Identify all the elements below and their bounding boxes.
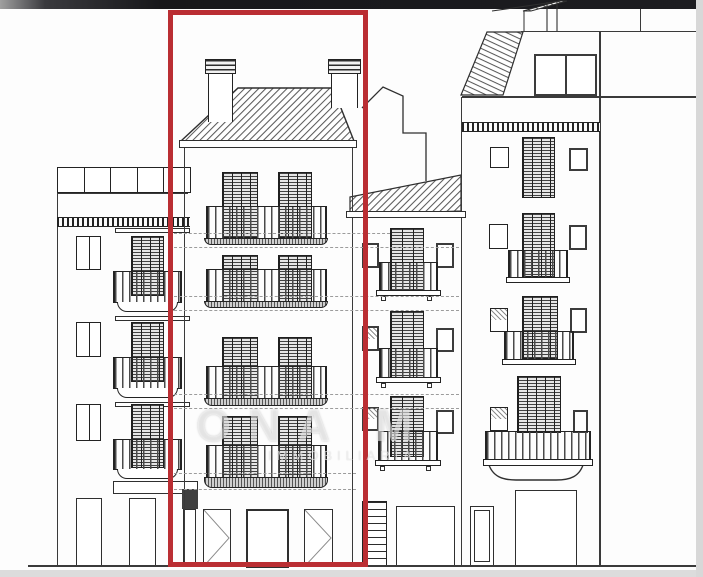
- right-building-right-wall: [599, 32, 601, 566]
- attic-window: [534, 54, 597, 96]
- left-building-left-wall: [57, 193, 58, 566]
- middle-right-boundary-wall: [461, 97, 462, 566]
- middle-shop-opening: [396, 506, 455, 567]
- right-balcony-slab-f3: [502, 359, 576, 365]
- right-window-f3-left: [490, 308, 508, 332]
- left-small-window-2: [76, 322, 101, 357]
- right-window-f4-left: [490, 407, 508, 431]
- slab-foot: [427, 383, 432, 388]
- right-window-f3-right: [570, 308, 587, 333]
- left-ground-door-1: [76, 498, 102, 566]
- right-shop-opening: [515, 490, 577, 566]
- watermark-sub-text: IMMOBILIARIA: [268, 448, 417, 463]
- right-window-f2-right: [569, 225, 587, 250]
- elevation-drawing: ONA M IMMOBILIARIA: [0, 0, 703, 577]
- attic-window-mullion: [565, 56, 567, 94]
- left-small-window-1: [76, 236, 101, 270]
- right-attic-roof: [461, 32, 523, 95]
- right-edge-strip: [696, 0, 703, 577]
- left-small-window-3: [76, 404, 101, 441]
- rooftop-tick-line: [640, 9, 641, 32]
- right-window-f1-center: [522, 137, 555, 198]
- middle-railing-fB: [379, 348, 438, 378]
- middle-railing-fA: [379, 262, 438, 291]
- left-ground-door-2: [129, 498, 156, 566]
- right-window-f4-right: [573, 410, 588, 433]
- bottom-edge-strip: [0, 570, 703, 577]
- subject-highlight-box: [168, 10, 368, 567]
- right-railing-f4-wide: [485, 431, 591, 460]
- right-railing-f2: [508, 250, 568, 278]
- right-ground-door: [470, 506, 494, 566]
- right-cornice-line: [462, 96, 697, 98]
- right-dentil-frieze: [462, 122, 600, 132]
- slab-foot: [426, 466, 431, 471]
- right-window-f2-left: [489, 224, 508, 249]
- stepped-party-wall: [362, 87, 426, 181]
- right-window-f1-left: [490, 147, 509, 168]
- right-balcony-slab-f4: [483, 459, 593, 466]
- right-attic-top-line: [521, 31, 697, 32]
- right-window-f1-right: [569, 148, 588, 171]
- right-railing-f3: [504, 331, 574, 360]
- slab-foot: [380, 466, 385, 471]
- middle-window-fC-right: [436, 410, 454, 434]
- middle-window-fB-right: [436, 328, 454, 352]
- right-balcony-slab-f2: [506, 277, 570, 283]
- slab-foot: [381, 383, 386, 388]
- right-doors-f4: [517, 376, 561, 433]
- watermark-logo-text: ONA M: [196, 400, 429, 452]
